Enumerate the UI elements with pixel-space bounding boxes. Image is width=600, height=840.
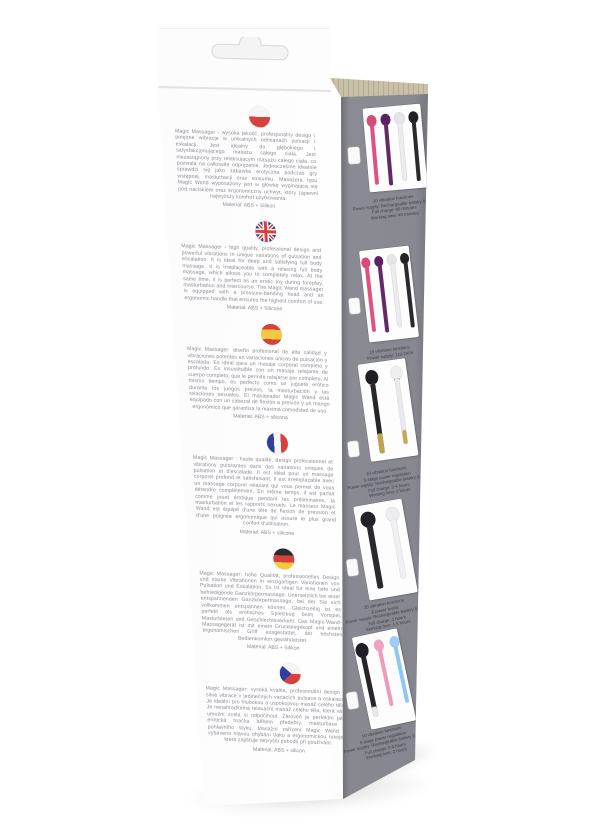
- wand-gold-base: [377, 433, 385, 454]
- language-section-spanish: Magic Massager: diseño profesional de al…: [185, 321, 361, 424]
- white-wand-icon: [394, 112, 410, 181]
- language-section-polish: Magic Massager - wysoka jakość, profesjo…: [173, 103, 350, 212]
- united-kingdom-flag-icon: [255, 221, 277, 243]
- variant-checkbox-3: [347, 440, 360, 457]
- purple-wand-icon: [380, 113, 396, 186]
- language-section-english: Magic Massager - high quality, professio…: [180, 219, 356, 315]
- wand-white-base: [371, 706, 378, 717]
- wand-body: [390, 263, 401, 327]
- variant-checkbox-1: [347, 147, 360, 165]
- variant-checkbox-4: [346, 558, 359, 576]
- wand-body: [370, 384, 385, 454]
- wand-body: [370, 125, 379, 185]
- wand-body: [412, 121, 421, 181]
- wand-body: [398, 122, 407, 180]
- flap-fold-line: [160, 28, 330, 29]
- black-gold-wand-icon: [364, 369, 389, 454]
- pink-wand-icon: [366, 115, 382, 186]
- spain-flag-icon: [260, 324, 282, 346]
- wand-group-2: [359, 245, 419, 342]
- wand-body: [377, 265, 389, 333]
- description-text-english: Magic Massager - high quality, professio…: [181, 244, 324, 306]
- germany-flag-icon: [273, 548, 295, 570]
- description-text-spanish: Magic Massager: diseño profesional de al…: [187, 346, 330, 415]
- czech-republic-flag-icon: [279, 663, 301, 685]
- description-text-french: Magic Massager : haute qualité, design p…: [193, 455, 337, 530]
- product-photo-1: [362, 104, 427, 193]
- wand-body: [377, 649, 393, 707]
- wand-gold-base: [402, 430, 408, 444]
- product-photo-2: [359, 245, 419, 342]
- wand-body: [366, 525, 383, 589]
- poland-flag-icon: [248, 106, 270, 128]
- wand-body: [395, 378, 408, 444]
- black-wand-icon: [408, 111, 424, 182]
- variant-checkbox-5: [346, 691, 359, 709]
- variant-checkbox-2: [348, 298, 360, 315]
- euro-slot-cutout-icon: [210, 36, 291, 69]
- france-flag-icon: [266, 433, 288, 455]
- language-section-french: Magic Massager : haute qualité, design p…: [191, 430, 368, 539]
- description-text-czech: Magic Massager: vysoká kvalita, profesio…: [206, 685, 349, 747]
- front-panel: Magic Massager - wysoka jakość, profesjo…: [0, 0, 600, 840]
- description-text-german: Magic Massager: hohe Qualität, professio…: [199, 570, 343, 645]
- wand-body: [384, 124, 393, 186]
- wand-body: [391, 519, 406, 579]
- wand-group-1: [362, 104, 427, 193]
- description-text-polish: Magic Massager - wysoka jakość, profesjo…: [175, 128, 319, 203]
